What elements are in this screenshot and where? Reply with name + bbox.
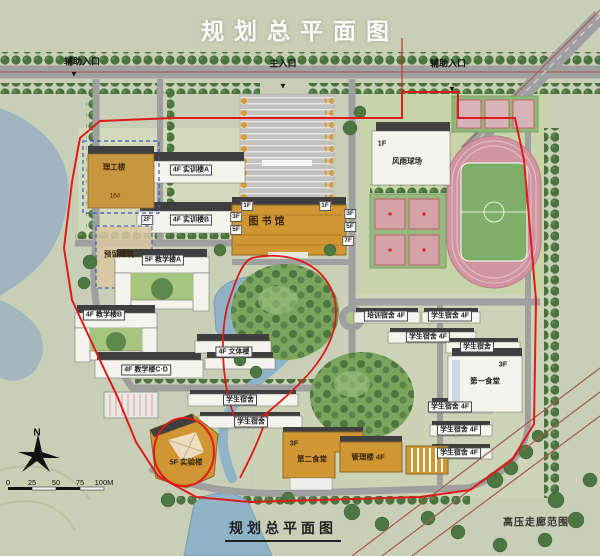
library-tag-7f-right: 7F bbox=[342, 236, 354, 246]
entrance-aux-east-arrow: ▼ bbox=[448, 85, 456, 94]
canteen1-floors-tag: 3F bbox=[499, 360, 508, 369]
library-tag-3f-right: 3F bbox=[344, 209, 356, 219]
building-label-fengyu-qiuchang: 风雨球场 bbox=[392, 156, 422, 167]
building-label-dorm-1: 学生宿舍 4F bbox=[428, 311, 472, 322]
building-label-canteen-2: 第二食堂 bbox=[297, 454, 327, 465]
label-layer: 辅助入口▼主入口▼辅助入口▼理工楼16#2F预留建筑4F 实训楼A4F 实训楼B… bbox=[0, 0, 600, 556]
building-label-dorm-3: 学生宿舍 bbox=[460, 342, 494, 353]
library-tag-1f-right: 1F bbox=[319, 201, 331, 211]
building-label-guanli: 管理楼 4F bbox=[351, 452, 384, 463]
scale-tick: 50 bbox=[52, 478, 60, 487]
compass-n-label: N bbox=[33, 428, 40, 439]
building-label-library: 图书馆 bbox=[249, 213, 288, 228]
building-tag-fengyu-floors: 1F bbox=[378, 139, 387, 148]
building-label-shixun-a: 4F 实训楼A bbox=[170, 165, 212, 176]
building-label-yuliu: 预留建筑 bbox=[104, 249, 134, 260]
building-label-shiyan: 5F 实验楼 bbox=[169, 457, 202, 468]
scale-tick: 0 bbox=[6, 478, 10, 487]
library-tag-5f-left: 5F bbox=[230, 225, 242, 235]
scale-tick: 25 bbox=[28, 478, 36, 487]
entrance-main-arrow: ▼ bbox=[279, 82, 287, 91]
entrance-aux-west: 辅助入口 bbox=[64, 55, 100, 68]
canteen2-floors-tag: 3F bbox=[290, 439, 299, 448]
library-tag-3f-left: 3F bbox=[230, 212, 242, 222]
building-label-ligonglou: 理工楼 bbox=[103, 162, 126, 173]
hv-corridor-note: 高压走廊范围 bbox=[503, 514, 569, 529]
library-tag-5f-right: 5F bbox=[344, 222, 356, 232]
building-label-dorm-6: 学生宿舍 4F bbox=[437, 448, 481, 459]
building-label-jiaoxue-b: 4F 教学楼B bbox=[83, 310, 125, 321]
building-label-dorm-5: 学生宿舍 4F bbox=[437, 425, 481, 436]
building-label-jiaoxue-a: 5F 教学楼A bbox=[142, 255, 184, 266]
entrance-aux-east: 辅助入口 bbox=[430, 57, 466, 70]
library-tag-1f-left: 1F bbox=[241, 201, 253, 211]
building-label-dorm-4: 学生宿舍 4F bbox=[428, 402, 472, 413]
building-label-peixun-dorm: 培训宿舍 4F bbox=[364, 311, 408, 322]
building-label-canteen-1: 第一食堂 bbox=[470, 376, 500, 387]
building-label-jiaoxue-cd: 4F 教学楼C·D bbox=[121, 365, 171, 376]
site-plan-canvas: 规划总平面图 规划总平面图 辅助入口▼主入口▼辅助入口▼理工楼16#2F预留建筑… bbox=[0, 0, 600, 556]
building-label-dorm-2: 学生宿舍 4F bbox=[406, 332, 450, 343]
building-label-dorm-8: 学生宿舍 bbox=[234, 417, 268, 428]
building-label-dorm-7: 学生宿舍 bbox=[223, 395, 257, 406]
building-label-wenti: 4F 文体楼 bbox=[215, 347, 252, 358]
entrance-aux-west-arrow: ▼ bbox=[70, 70, 78, 79]
scale-tick: 100M bbox=[95, 478, 114, 487]
entrance-main: 主入口 bbox=[269, 57, 296, 70]
building-label-shixun-b: 4F 实训楼B bbox=[170, 215, 212, 226]
scale-tick: 75 bbox=[76, 478, 84, 487]
building-label-ligonglou-area: 16# bbox=[110, 193, 121, 200]
building-tag-yuliu-floors: 2F bbox=[141, 215, 153, 225]
